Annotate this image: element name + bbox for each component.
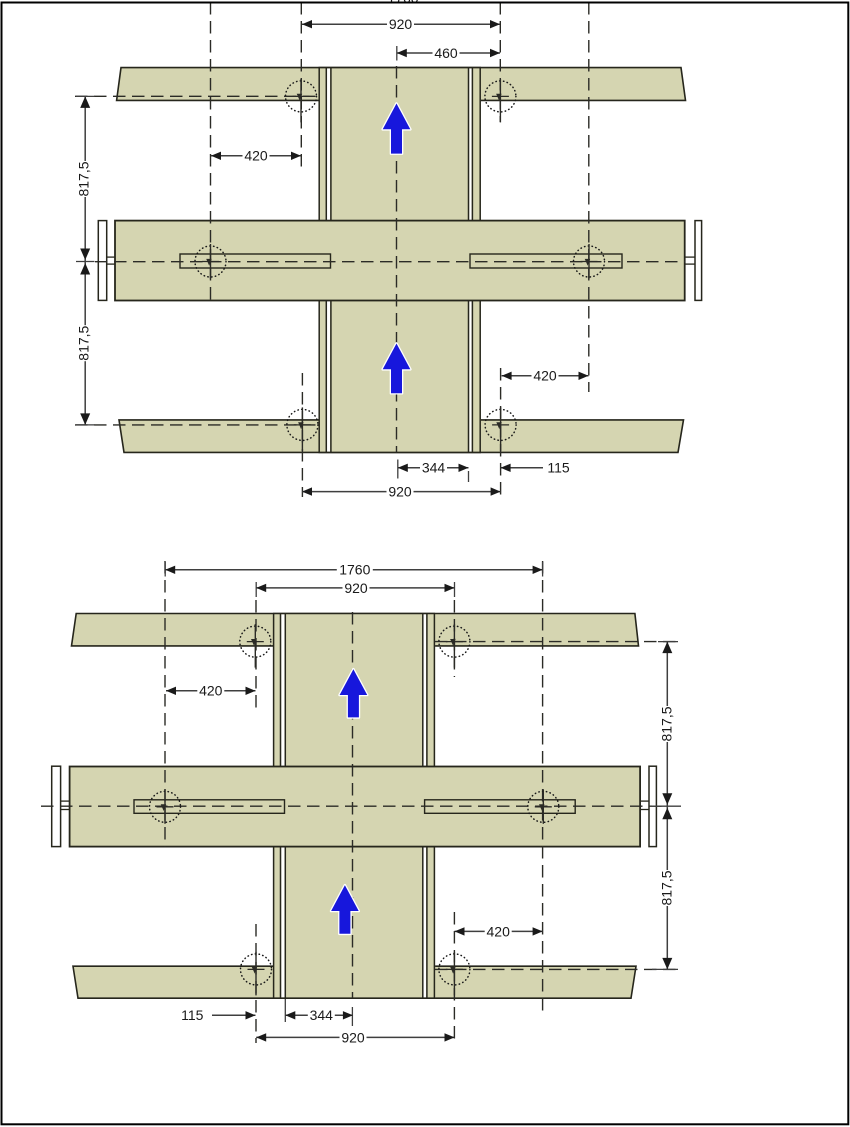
svg-text:817,5: 817,5 xyxy=(76,161,92,196)
svg-text:460: 460 xyxy=(434,45,458,61)
svg-text:344: 344 xyxy=(422,460,446,476)
svg-text:115: 115 xyxy=(547,460,570,476)
svg-text:420: 420 xyxy=(244,148,268,164)
svg-text:920: 920 xyxy=(341,1029,365,1045)
svg-text:920: 920 xyxy=(344,580,368,596)
svg-text:817,5: 817,5 xyxy=(659,870,675,905)
svg-text:420: 420 xyxy=(487,923,511,939)
svg-text:420: 420 xyxy=(199,683,223,699)
svg-text:1760: 1760 xyxy=(339,562,370,578)
svg-text:344: 344 xyxy=(310,1007,334,1023)
svg-text:920: 920 xyxy=(389,16,413,32)
svg-text:115: 115 xyxy=(181,1007,204,1023)
svg-text:817,5: 817,5 xyxy=(659,706,675,741)
svg-text:420: 420 xyxy=(533,368,557,384)
svg-text:920: 920 xyxy=(388,484,412,500)
svg-text:817,5: 817,5 xyxy=(76,325,92,360)
